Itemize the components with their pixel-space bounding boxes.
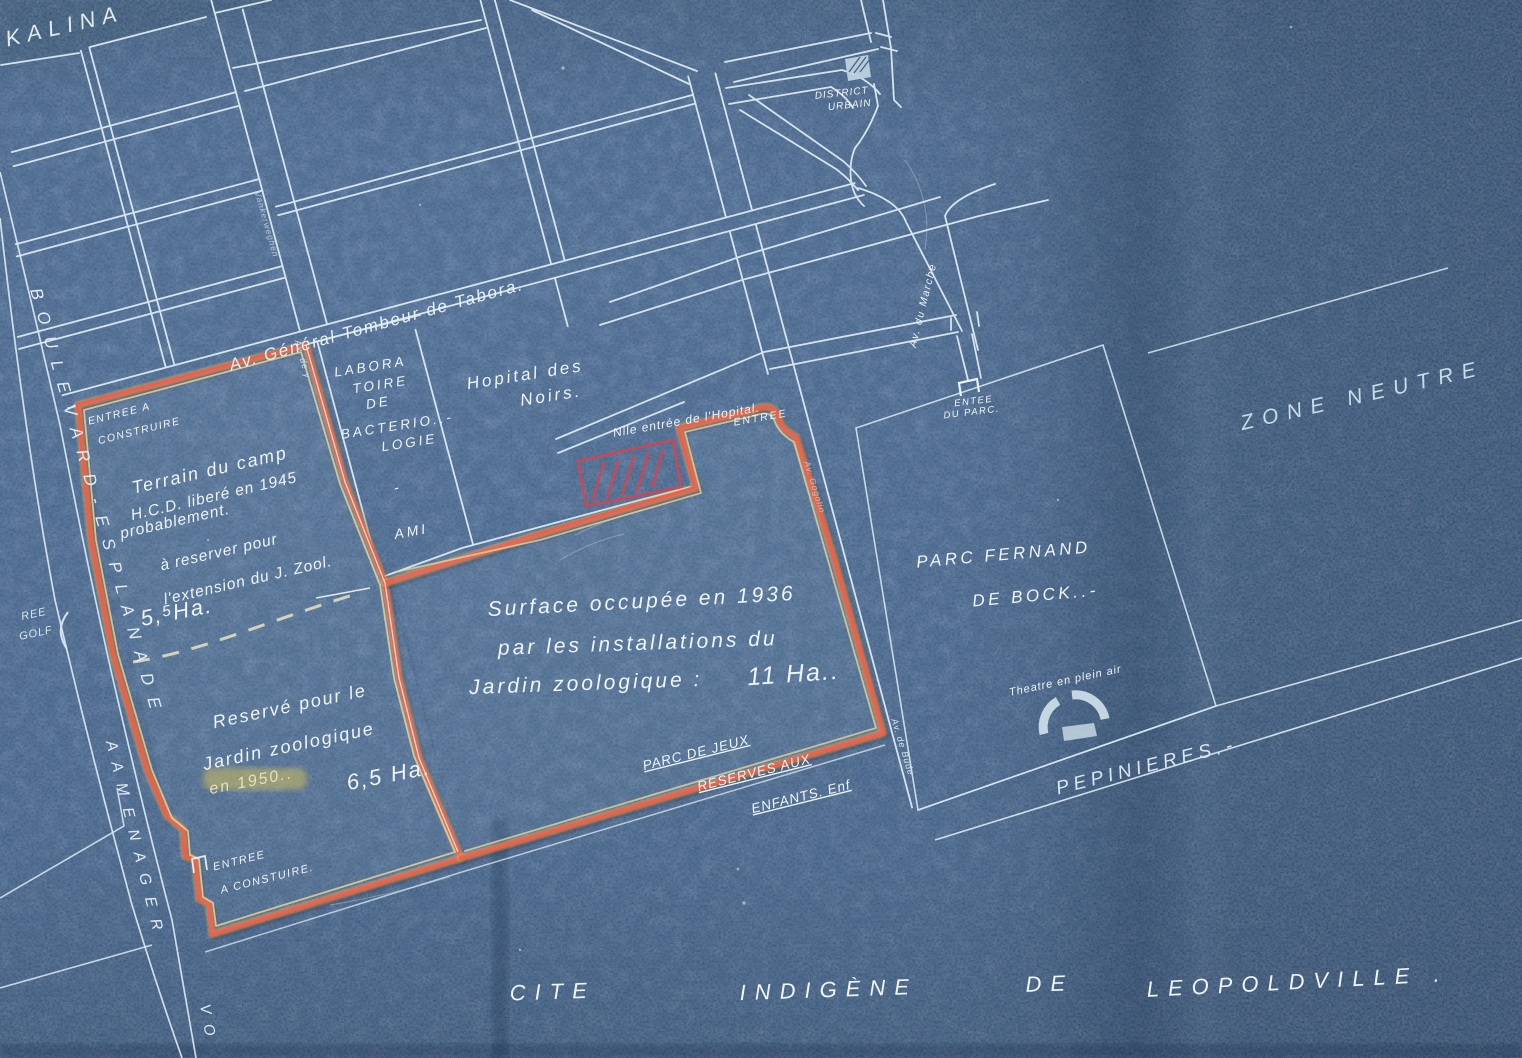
svg-text:CITE: CITE	[509, 978, 596, 1006]
svg-text:DE: DE	[1025, 970, 1074, 997]
